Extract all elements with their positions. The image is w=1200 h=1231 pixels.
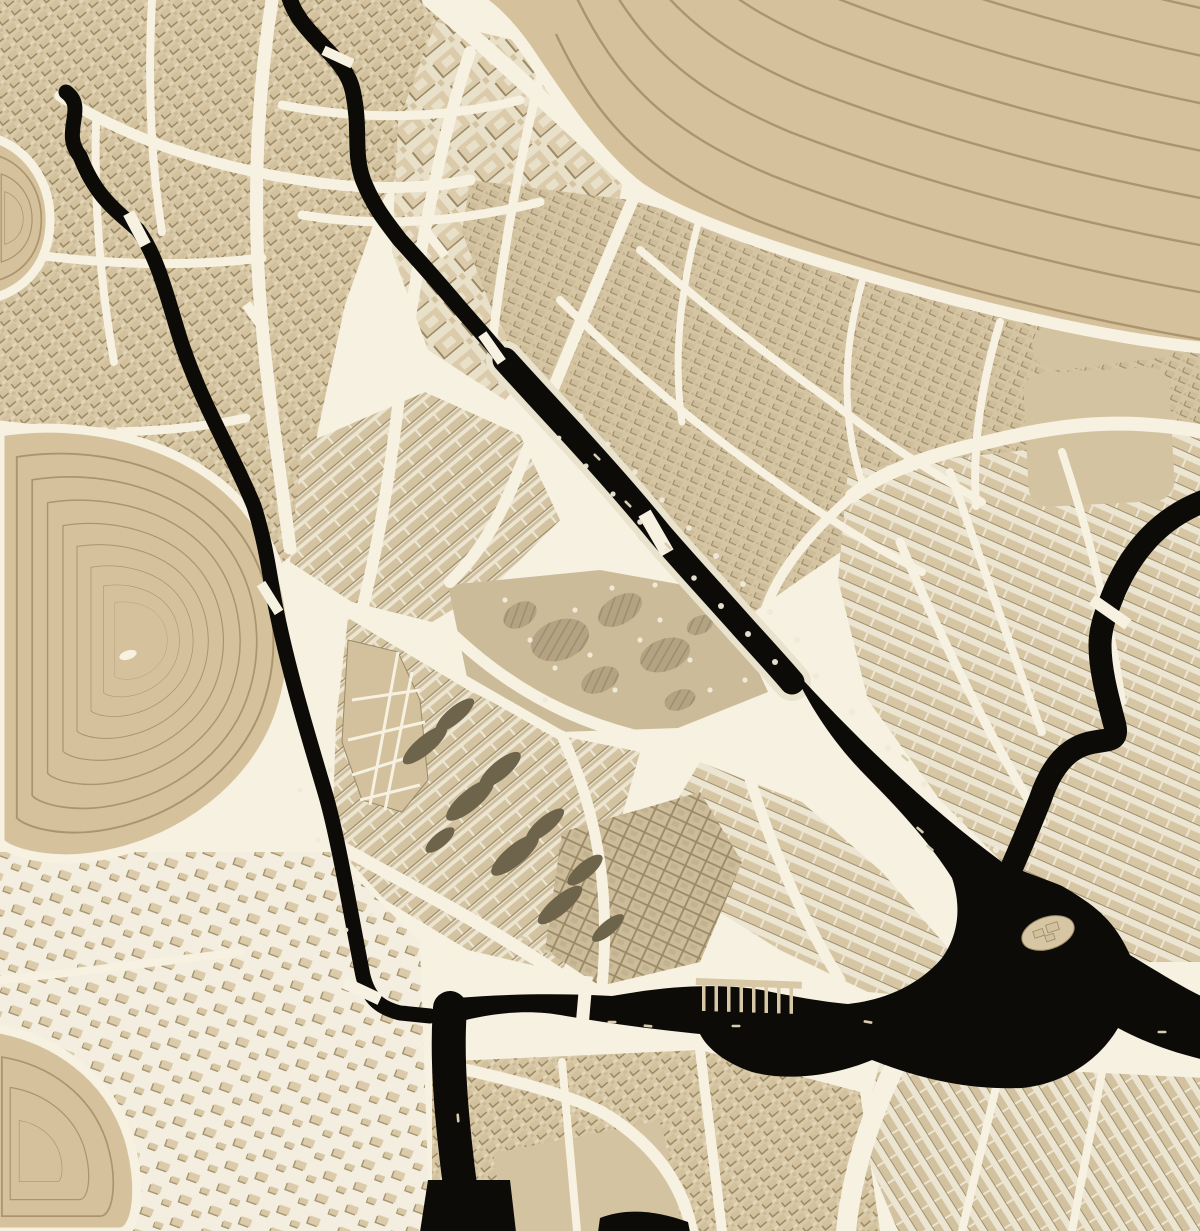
boat <box>732 1025 741 1028</box>
tree-icon <box>344 928 349 933</box>
tree-icon <box>612 687 617 692</box>
tree-icon <box>552 665 557 670</box>
tree-icon <box>370 913 375 918</box>
tree-icon <box>849 709 855 715</box>
tree-icon <box>298 788 303 793</box>
tree-icon <box>587 652 592 657</box>
pier-jetty <box>702 985 706 1011</box>
tree-icon <box>637 519 643 525</box>
tree-icon <box>885 745 891 751</box>
tree-icon <box>713 553 719 559</box>
tree-icon <box>745 631 751 637</box>
tree-icon <box>557 436 562 441</box>
tree-icon <box>583 463 588 468</box>
tree-icon <box>637 637 642 642</box>
tree-icon <box>652 582 657 587</box>
plaza-east-esplanade <box>1023 366 1176 507</box>
masterplan-render <box>0 0 1200 1231</box>
pier-jetty <box>790 988 794 1014</box>
tree-icon <box>316 838 321 843</box>
tree-icon <box>657 617 662 622</box>
tree-icon <box>740 581 746 587</box>
pier-jetty <box>715 985 719 1011</box>
tree-icon <box>767 609 773 615</box>
pier-jetty <box>740 986 744 1012</box>
tree-icon <box>794 637 800 643</box>
boat <box>1158 1031 1167 1034</box>
tree-icon <box>502 597 507 602</box>
tree-icon <box>993 847 999 853</box>
tree-icon <box>330 883 335 888</box>
tree-icon <box>659 497 665 503</box>
tree-icon <box>718 603 724 609</box>
tree-icon <box>609 585 614 590</box>
pier-jetty <box>752 987 756 1013</box>
tree-icon <box>572 607 577 612</box>
boat <box>608 1021 617 1024</box>
tree-icon <box>605 441 610 446</box>
tree-icon <box>542 697 547 702</box>
tree-icon <box>632 469 638 475</box>
pier-jetty <box>727 986 731 1012</box>
tree-icon <box>356 866 361 871</box>
tree-icon <box>578 413 583 418</box>
district-district-southeast-rows <box>860 1062 1200 1231</box>
river-south-branch <box>449 1008 463 1231</box>
pier-jetty <box>765 987 769 1013</box>
tree-icon <box>742 677 747 682</box>
tree-icon <box>707 687 712 692</box>
tree-icon <box>343 818 348 823</box>
tree-icon <box>328 768 333 773</box>
city-masterplan-map <box>0 0 1200 1231</box>
tree-icon <box>772 659 778 665</box>
tree-icon <box>610 491 615 496</box>
tree-icon <box>957 817 963 823</box>
tree-icon <box>813 673 819 679</box>
tree-icon <box>921 781 927 787</box>
tree-icon <box>527 637 532 642</box>
tree-icon <box>686 525 692 531</box>
bridge <box>582 976 587 1032</box>
tree-icon <box>691 575 697 581</box>
pier-jetty <box>777 987 781 1013</box>
tree-icon <box>687 657 692 662</box>
